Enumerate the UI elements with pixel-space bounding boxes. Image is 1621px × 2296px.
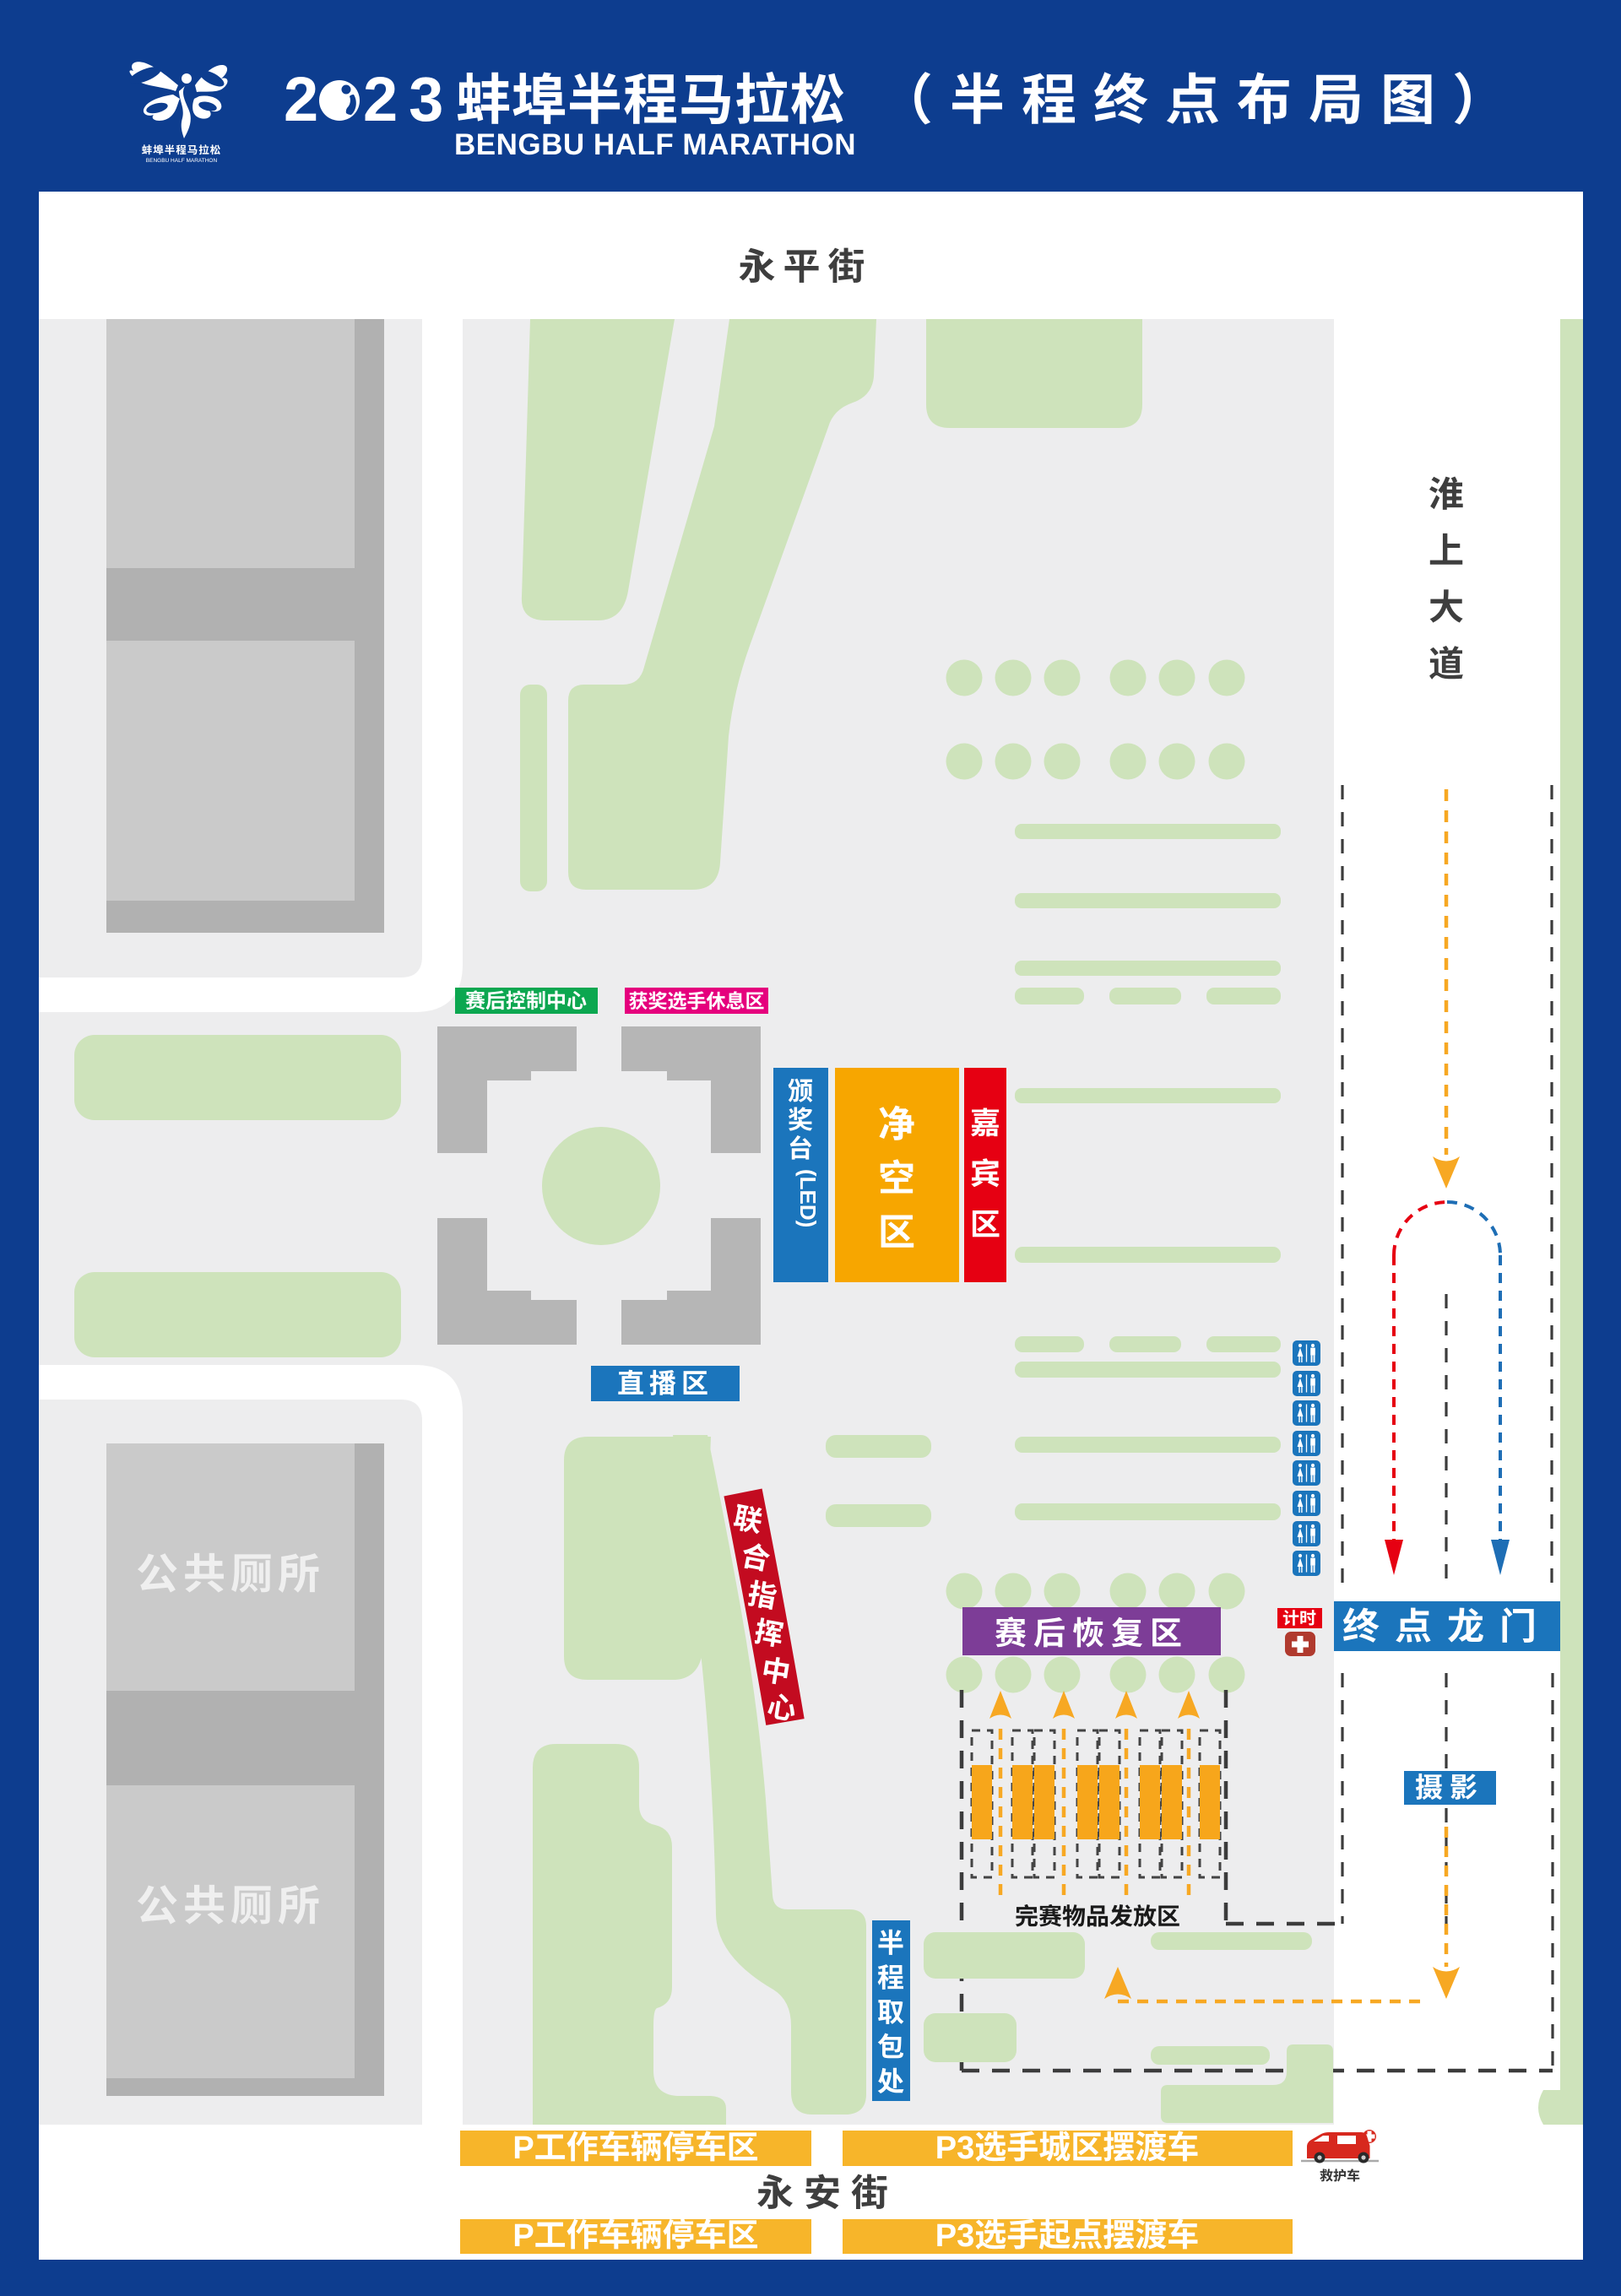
svg-text:公共厕所: 公共厕所 <box>136 1872 325 1933</box>
svg-text:上: 上 <box>1429 523 1464 574</box>
svg-text:获奖选手休息区: 获奖选手休息区 <box>629 985 765 1014</box>
svg-text:程: 程 <box>877 1957 904 1995</box>
svg-text:BENGBU HALF MARATHON: BENGBU HALF MARATHON <box>454 121 856 164</box>
svg-text:赛后控制中心: 赛后控制中心 <box>465 984 587 1014</box>
svg-text:救护车: 救护车 <box>1320 2164 1360 2185</box>
svg-text:嘉: 嘉 <box>970 1099 1000 1143</box>
svg-text:宾: 宾 <box>970 1150 1000 1194</box>
svg-text:淮: 淮 <box>1429 466 1464 517</box>
svg-text:大: 大 <box>1429 579 1464 631</box>
svg-text:完赛物品发放区: 完赛物品发放区 <box>1015 1898 1180 1932</box>
svg-text:23: 23 <box>363 49 454 139</box>
svg-text:终点龙门: 终点龙门 <box>1342 1596 1552 1650</box>
svg-text:P工作车辆停车区: P工作车辆停车区 <box>512 2209 758 2255</box>
svg-text:（半程终点布局图）: （半程终点布局图） <box>878 56 1524 135</box>
svg-text:永平街: 永平街 <box>739 236 873 290</box>
svg-text:(LED): (LED) <box>794 1169 825 1227</box>
svg-text:计时: 计时 <box>1282 1605 1316 1629</box>
svg-text:空: 空 <box>878 1148 915 1202</box>
svg-text:区: 区 <box>878 1202 915 1256</box>
svg-text:摄影: 摄影 <box>1415 1765 1484 1806</box>
svg-text:2: 2 <box>284 49 318 139</box>
svg-text:包: 包 <box>877 2026 904 2065</box>
svg-text:P3选手起点摆渡车: P3选手起点摆渡车 <box>935 2209 1199 2255</box>
svg-text:台: 台 <box>788 1128 813 1165</box>
svg-text:P3选手城区摆渡车: P3选手城区摆渡车 <box>935 2121 1199 2168</box>
svg-text:道: 道 <box>1429 636 1464 687</box>
svg-text:处: 处 <box>877 2060 904 2099</box>
svg-text:直播区: 直播区 <box>617 1362 713 1401</box>
svg-text:区: 区 <box>970 1200 1000 1244</box>
svg-text:赛后恢复区: 赛后恢复区 <box>995 1607 1189 1654</box>
svg-text:净: 净 <box>878 1094 915 1148</box>
svg-text:BENGBU HALF MARATHON: BENGBU HALF MARATHON <box>146 155 218 164</box>
svg-text:P工作车辆停车区: P工作车辆停车区 <box>512 2121 758 2168</box>
svg-text:取: 取 <box>877 1991 904 2030</box>
svg-text:半: 半 <box>877 1922 904 1961</box>
svg-text:永安街: 永安街 <box>756 2163 898 2217</box>
svg-text:公共厕所: 公共厕所 <box>136 1541 325 1601</box>
